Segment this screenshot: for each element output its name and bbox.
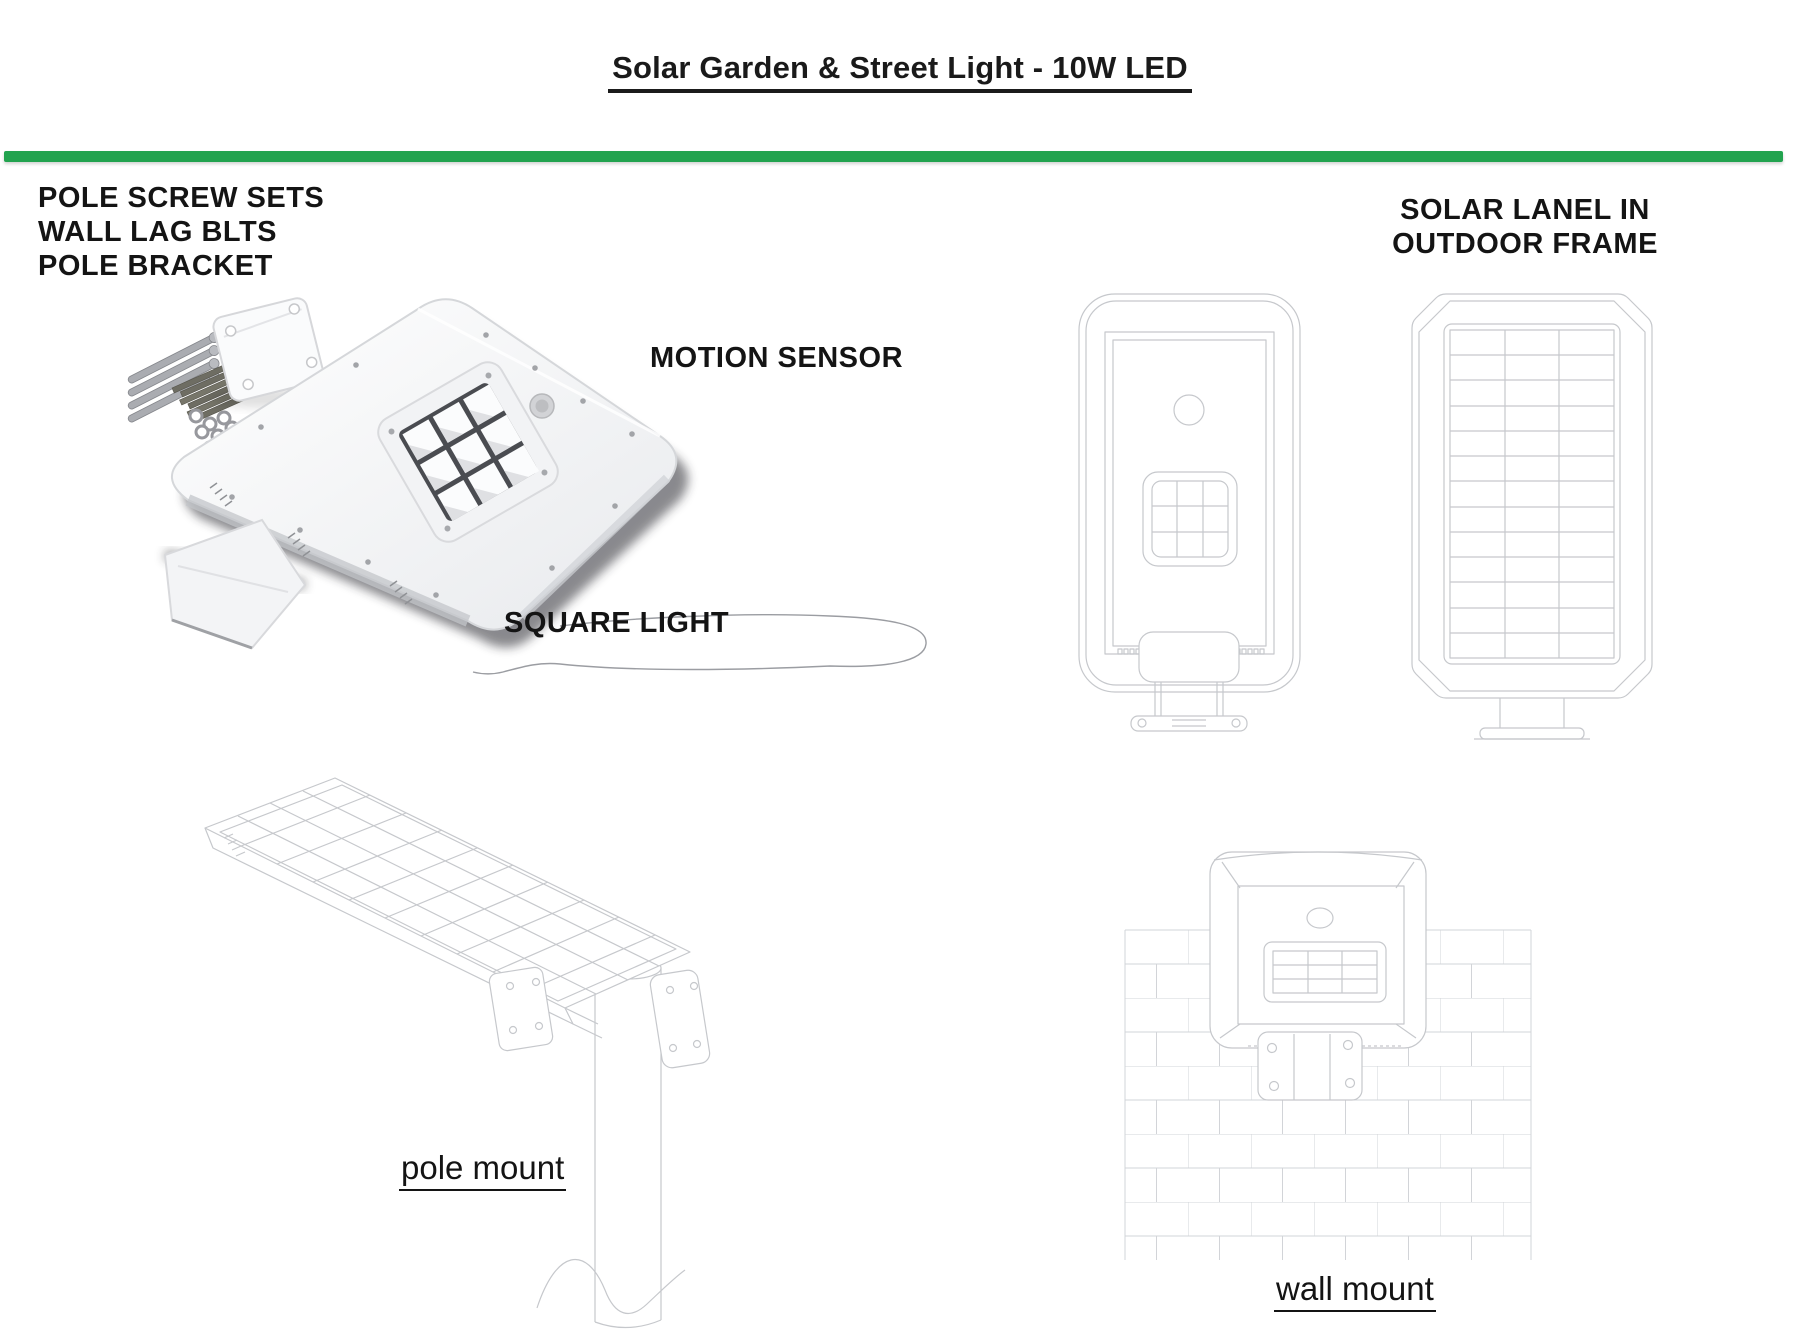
wall-mount-label-wrap: wall mount — [1274, 1270, 1436, 1308]
front-view-drawing — [1075, 288, 1305, 738]
page-header: Solar Garden & Street Light - 10W LED — [0, 50, 1800, 93]
wall-mount-label: wall mount — [1274, 1270, 1436, 1312]
wall-bracket-outline — [1258, 1032, 1362, 1100]
square-light-label: SQUARE LIGHT — [504, 606, 729, 640]
wall-mount-drawing — [1098, 838, 1568, 1266]
solar-panel-top-outline — [205, 778, 690, 1024]
pole-mount-drawing — [158, 672, 808, 1333]
hardware-kit-label-line: POLE SCREW SETS — [38, 181, 324, 215]
pole-outline — [595, 957, 661, 1328]
pole-mount-label-wrap: pole mount — [399, 1149, 566, 1187]
green-divider — [4, 151, 1783, 162]
ground-squiggle — [537, 1259, 685, 1313]
back-view-drawing — [1408, 288, 1658, 740]
bottom-stem-outline — [1474, 698, 1590, 739]
solar-frame-label-line: OUTDOOR FRAME — [1290, 227, 1760, 261]
solar-frame-label: SOLAR LANEL IN OUTDOOR FRAME — [1290, 193, 1760, 261]
page-title: Solar Garden & Street Light - 10W LED — [608, 50, 1192, 93]
hardware-kit-label-line: WALL LAG BLTS — [38, 215, 324, 249]
solar-frame-label-line: SOLAR LANEL IN — [1290, 193, 1760, 227]
bottom-bracket-outline — [1131, 632, 1247, 731]
page: Solar Garden & Street Light - 10W LED PO… — [0, 0, 1800, 1333]
pole-mount-label: pole mount — [399, 1149, 566, 1191]
motion-sensor-dome — [530, 394, 554, 418]
